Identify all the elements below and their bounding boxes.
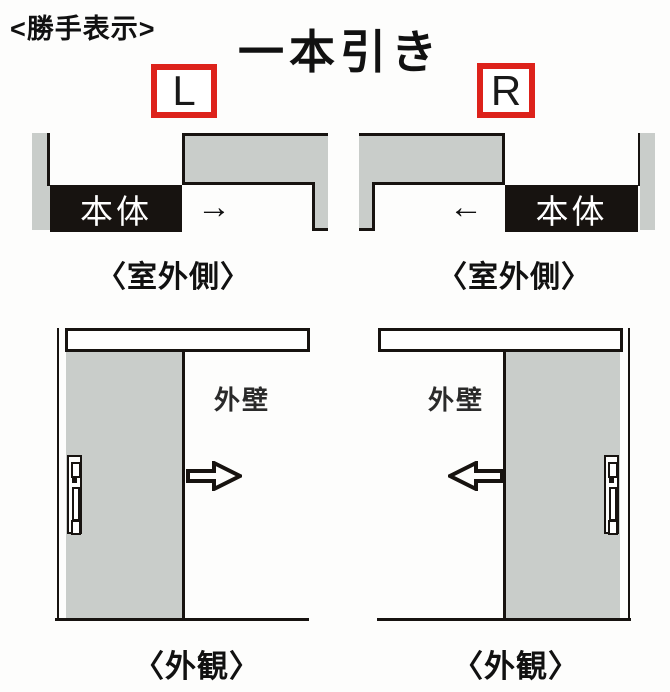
slide-direction-arrow-left-icon: ← (449, 190, 483, 224)
elev-right-lintel (378, 328, 623, 352)
door-handle-icon (604, 455, 619, 534)
plan-left-wall-outline-bottom (182, 182, 315, 185)
plan-left-caption: 〈室外側〉 (96, 252, 251, 296)
handle-base (71, 520, 81, 535)
plan-left-return-outline-bottom (312, 228, 328, 231)
elev-left-door-edge-line (182, 352, 185, 619)
handle-grip (609, 487, 617, 521)
elev-left-frame-line (57, 328, 59, 620)
elev-right-ground-line (377, 618, 631, 621)
hollow-arrow-right-icon (186, 461, 242, 491)
plan-left-door-body: 本体 (50, 185, 182, 232)
elev-left-wall-label: 外壁 (214, 380, 270, 417)
elev-left-caption: 〈外観〉 (133, 641, 261, 686)
slide-direction-arrow-right-icon: → (197, 190, 231, 224)
handle-base (608, 520, 618, 535)
elev-left-ground-line (55, 618, 309, 621)
plan-left-wall-outline-left (182, 133, 185, 185)
elev-right-frame-line (628, 328, 630, 620)
letter-box-l: L (151, 64, 217, 118)
plan-right-return-outline-right (372, 185, 375, 231)
plan-right-jamb (640, 133, 655, 230)
plan-right-caption: 〈室外側〉 (437, 252, 592, 296)
handle-grip (72, 487, 80, 521)
handle-thumbturn (608, 462, 618, 478)
handle-cylinder (72, 477, 77, 483)
plan-right-wall-outline-bottom (372, 182, 505, 185)
hollow-arrow-left-icon (448, 461, 504, 491)
plan-right-door-body: 本体 (505, 185, 638, 232)
plan-right-wall-bar (359, 133, 505, 185)
elev-right-wall-label: 外壁 (428, 380, 484, 417)
plan-left-wall-outline-top (182, 133, 328, 136)
diagram-canvas: <勝手表示> 一本引き L R 本体 → 〈室外側〉 ← 本体 〈室外側〉 (0, 0, 670, 692)
elev-right-door-panel (506, 352, 620, 619)
door-handle-icon (67, 455, 82, 534)
handle-cylinder (609, 477, 614, 483)
plan-left-return-outline-left (312, 185, 315, 231)
handedness-label: <勝手表示> (10, 7, 156, 46)
elev-right-caption: 〈外観〉 (452, 641, 580, 686)
plan-right-return-outline-bottom (359, 228, 375, 231)
plan-right-wall-outline-right (502, 133, 505, 185)
plan-left-wall-bar (182, 133, 328, 185)
elev-left-lintel (65, 328, 310, 352)
handle-thumbturn (71, 462, 81, 478)
plan-left-jamb-edge (47, 133, 50, 186)
page-title: 一本引き (238, 16, 442, 82)
plan-right-wall-outline-top (359, 133, 505, 136)
elev-left-door-panel (66, 352, 182, 619)
letter-box-r: R (477, 63, 535, 118)
